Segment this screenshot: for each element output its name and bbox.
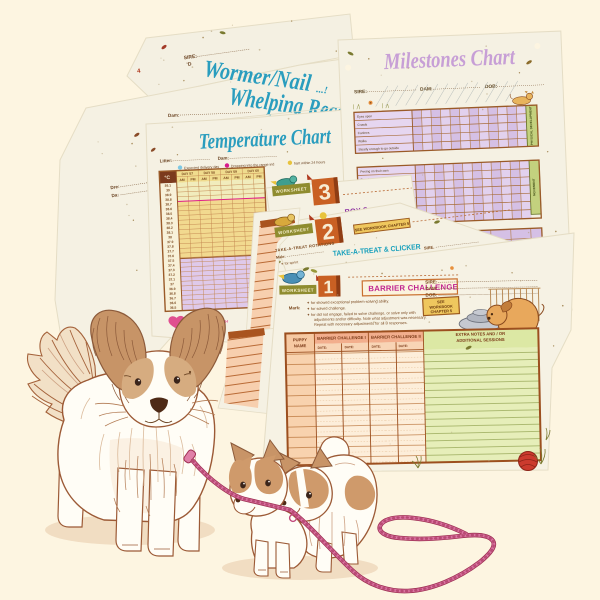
svg-text:MOVEMENT: MOVEMENT: [532, 178, 537, 196]
svg-text:SEE: SEE: [437, 300, 445, 304]
svg-text:37.5: 37.5: [168, 259, 175, 263]
svg-text:DAY 58: DAY 58: [203, 171, 215, 176]
svg-text:Milestones Chart: Milestones Chart: [383, 44, 516, 74]
svg-text:DAY 57: DAY 57: [181, 172, 193, 177]
svg-text:39: 39: [166, 188, 170, 192]
svg-text:36.6: 36.6: [170, 301, 177, 305]
svg-text:36.8: 36.8: [169, 292, 176, 296]
svg-text:37.7: 37.7: [167, 249, 174, 253]
svg-text:AM: AM: [201, 177, 207, 181]
svg-text:38.1: 38.1: [167, 231, 174, 235]
svg-text:Dam:: Dam:: [218, 155, 230, 161]
svg-text:38.2: 38.2: [166, 226, 173, 230]
svg-text:38.7: 38.7: [165, 202, 172, 206]
svg-text:38.4: 38.4: [166, 216, 173, 220]
svg-text:36.5: 36.5: [170, 306, 177, 310]
svg-text:39.1: 39.1: [165, 184, 172, 188]
svg-text:36.7: 36.7: [169, 296, 176, 300]
svg-text:37: 37: [170, 282, 174, 286]
svg-text:BARRIER CHALLENGE: BARRIER CHALLENGE: [368, 282, 458, 293]
svg-text:PM: PM: [256, 175, 261, 179]
svg-text:38.9: 38.9: [165, 193, 172, 197]
svg-text:PM: PM: [234, 175, 239, 179]
svg-text:37.8: 37.8: [167, 245, 174, 249]
svg-text:Eyes open: Eyes open: [357, 114, 372, 119]
svg-text:DAY 59: DAY 59: [225, 170, 237, 175]
svg-text:BARRIER CHALLENGE I: BARRIER CHALLENGE I: [317, 335, 366, 341]
svg-text:AM: AM: [223, 176, 229, 180]
svg-text:EXTRA NOTES AND / OR: EXTRA NOTES AND / OR: [456, 331, 506, 337]
svg-text:DAY 60: DAY 60: [247, 169, 259, 174]
svg-text:DATE:: DATE:: [318, 346, 328, 350]
svg-text:SIRE:: SIRE:: [425, 279, 438, 284]
svg-text:NAME: NAME: [294, 343, 307, 348]
svg-text:38.5: 38.5: [166, 212, 173, 216]
svg-text:37.6: 37.6: [168, 254, 175, 258]
svg-text:BARRIER CHALLENGE II: BARRIER CHALLENGE II: [371, 334, 421, 340]
svg-text:SIRE:: SIRE:: [354, 89, 367, 96]
svg-text:37.3: 37.3: [168, 268, 175, 272]
svg-text:WORKSHEET: WORKSHEET: [282, 288, 314, 294]
svg-text:37.2: 37.2: [168, 273, 175, 277]
svg-text:Canines: Canines: [358, 131, 370, 135]
svg-text:DOB:: DOB:: [425, 292, 437, 297]
svg-text:3: 3: [317, 179, 332, 205]
svg-text:PM: PM: [190, 177, 195, 181]
svg-text:✦ for solved challenge.: ✦ for solved challenge.: [307, 306, 346, 311]
svg-text:AM: AM: [245, 175, 251, 179]
svg-text:PUPPY: PUPPY: [293, 337, 308, 342]
svg-text:37.4: 37.4: [168, 263, 175, 267]
svg-text:PM: PM: [212, 176, 217, 180]
svg-text:Walks: Walks: [358, 139, 367, 143]
svg-text:DAM:: DAM:: [420, 86, 433, 93]
svg-text:38.8: 38.8: [165, 198, 172, 202]
svg-text:37.9: 37.9: [167, 240, 174, 244]
svg-text:DATE:: DATE:: [399, 344, 409, 348]
svg-text:Mark:: Mark:: [289, 305, 301, 310]
svg-text:1: 1: [323, 277, 333, 297]
svg-text:38.3: 38.3: [166, 221, 173, 225]
svg-text:37.1: 37.1: [169, 277, 176, 281]
svg-text:DAM:: DAM:: [425, 286, 438, 291]
svg-text:°C: °C: [164, 175, 170, 181]
svg-text:38: 38: [168, 235, 172, 239]
svg-text:38.6: 38.6: [166, 207, 173, 211]
svg-text:Dam:: Dam:: [168, 113, 180, 118]
svg-text:Litter:: Litter:: [160, 158, 173, 164]
svg-text:Crawls: Crawls: [357, 123, 367, 127]
svg-text:DATE:: DATE:: [345, 345, 355, 349]
svg-text:AM: AM: [179, 178, 185, 182]
svg-text:36.9: 36.9: [169, 287, 176, 291]
svg-text:ADDITIONAL SESSIONS: ADDITIONAL SESSIONS: [456, 337, 505, 343]
svg-text:DATE:: DATE:: [372, 345, 382, 349]
